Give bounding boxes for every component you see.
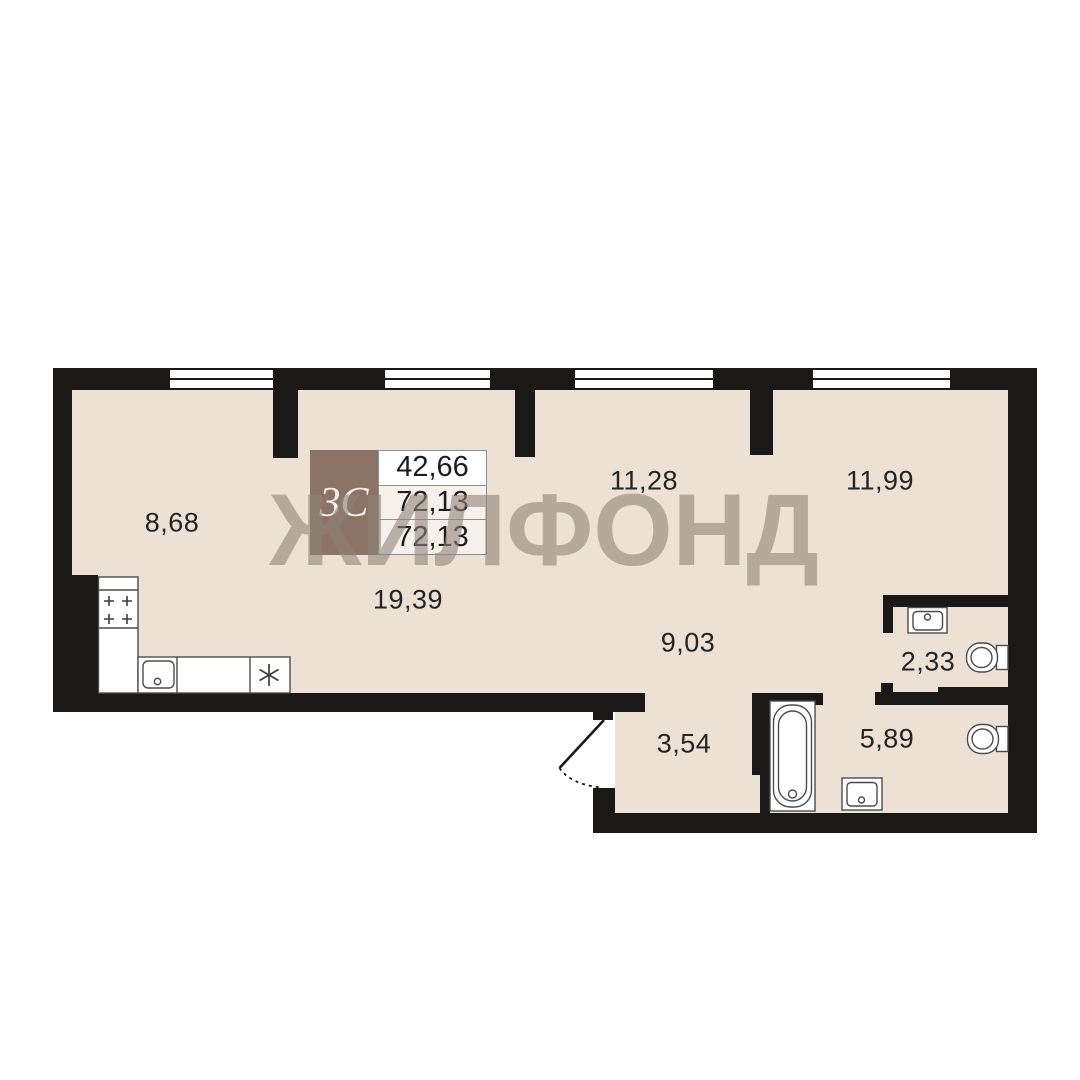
room-area-label: 19,39 (373, 585, 443, 616)
washbasin-icon (908, 608, 947, 634)
unit-area-row: 72,13 (379, 486, 486, 521)
washing-machine-icon (842, 778, 882, 810)
unit-info-box: 3С 42,66 72,13 72,13 (310, 450, 487, 555)
unit-area-row: 72,13 (379, 520, 486, 554)
toilet-icon (967, 643, 1009, 672)
toilet-icon (968, 725, 1009, 754)
fixtures-layer (0, 0, 1080, 1080)
unit-type-badge: 3С (310, 450, 378, 555)
room-area-label: 9,03 (661, 628, 716, 659)
room-area-label: 11,28 (610, 466, 678, 497)
bathtub-icon (770, 701, 815, 811)
room-area-label: 11,99 (846, 466, 914, 497)
floor-plan: 8,68 19,39 11,28 11,99 9,03 2,33 3,54 5,… (0, 0, 1080, 1080)
room-area-label: 5,89 (860, 724, 915, 755)
kitchen-counter (99, 577, 291, 693)
unit-area-table: 42,66 72,13 72,13 (378, 450, 487, 555)
room-area-label: 3,54 (657, 729, 712, 760)
room-area-label: 8,68 (145, 508, 200, 539)
room-area-label: 2,33 (901, 647, 956, 678)
unit-area-row: 42,66 (379, 451, 486, 486)
entrance-door (560, 720, 605, 788)
